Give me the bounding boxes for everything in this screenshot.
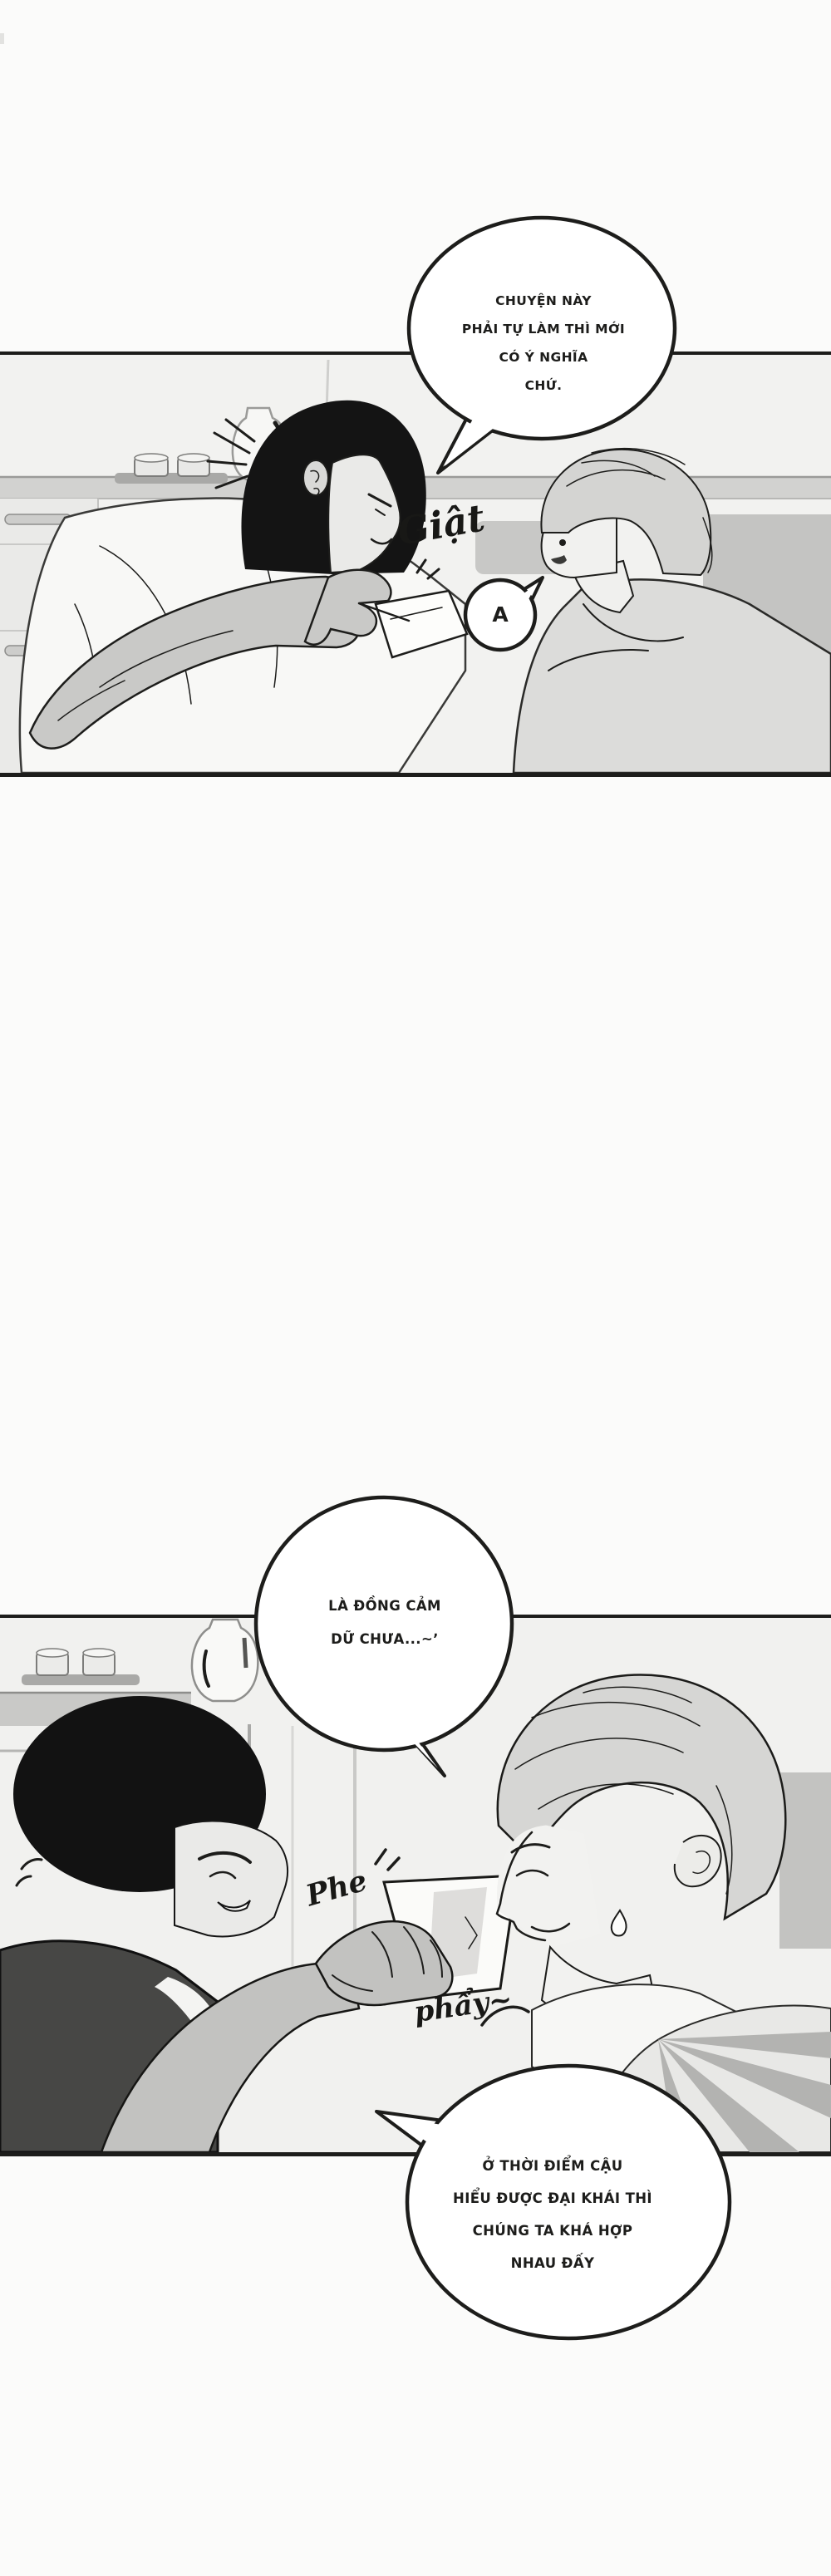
speech-bubble-2: LÀ ĐỒNG CẢM DỮ CHƯA...~ʼ (252, 1494, 518, 1785)
speech-bubble-1: CHUYỆN NÀY PHẢI TỰ LÀM THÌ MỚI CÓ Ý NGHĨ… (405, 214, 683, 480)
comic-page: Giật Phe phẩy~ CHUYỆN NÀY PHẢI TỰ LÀM TH… (0, 0, 831, 2576)
bubble-3-text: Ở THỜI ĐIỂM CẬU HIỂU ĐƯỢC ĐẠI KHÁI THÌ C… (411, 2150, 695, 2279)
background-shadow (779, 1772, 831, 1949)
exclaim-text: A (462, 602, 538, 627)
face (175, 1821, 288, 1937)
page-edge-mark (0, 33, 4, 44)
speech-bubble-3: Ở THỜI ĐIỂM CẬU HIỂU ĐƯỢC ĐẠI KHÁI THÌ C… (370, 2062, 735, 2345)
bubble-2-text: LÀ ĐỒNG CẢM DỮ CHƯA...~ʼ (268, 1590, 501, 1656)
eye (559, 539, 566, 546)
exclaim-bubble: A (462, 575, 545, 658)
ear (303, 460, 328, 495)
bubble-1-text: CHUYỆN NÀY PHẢI TỰ LÀM THÌ MỚI CÓ Ý NGHĨ… (419, 287, 668, 400)
